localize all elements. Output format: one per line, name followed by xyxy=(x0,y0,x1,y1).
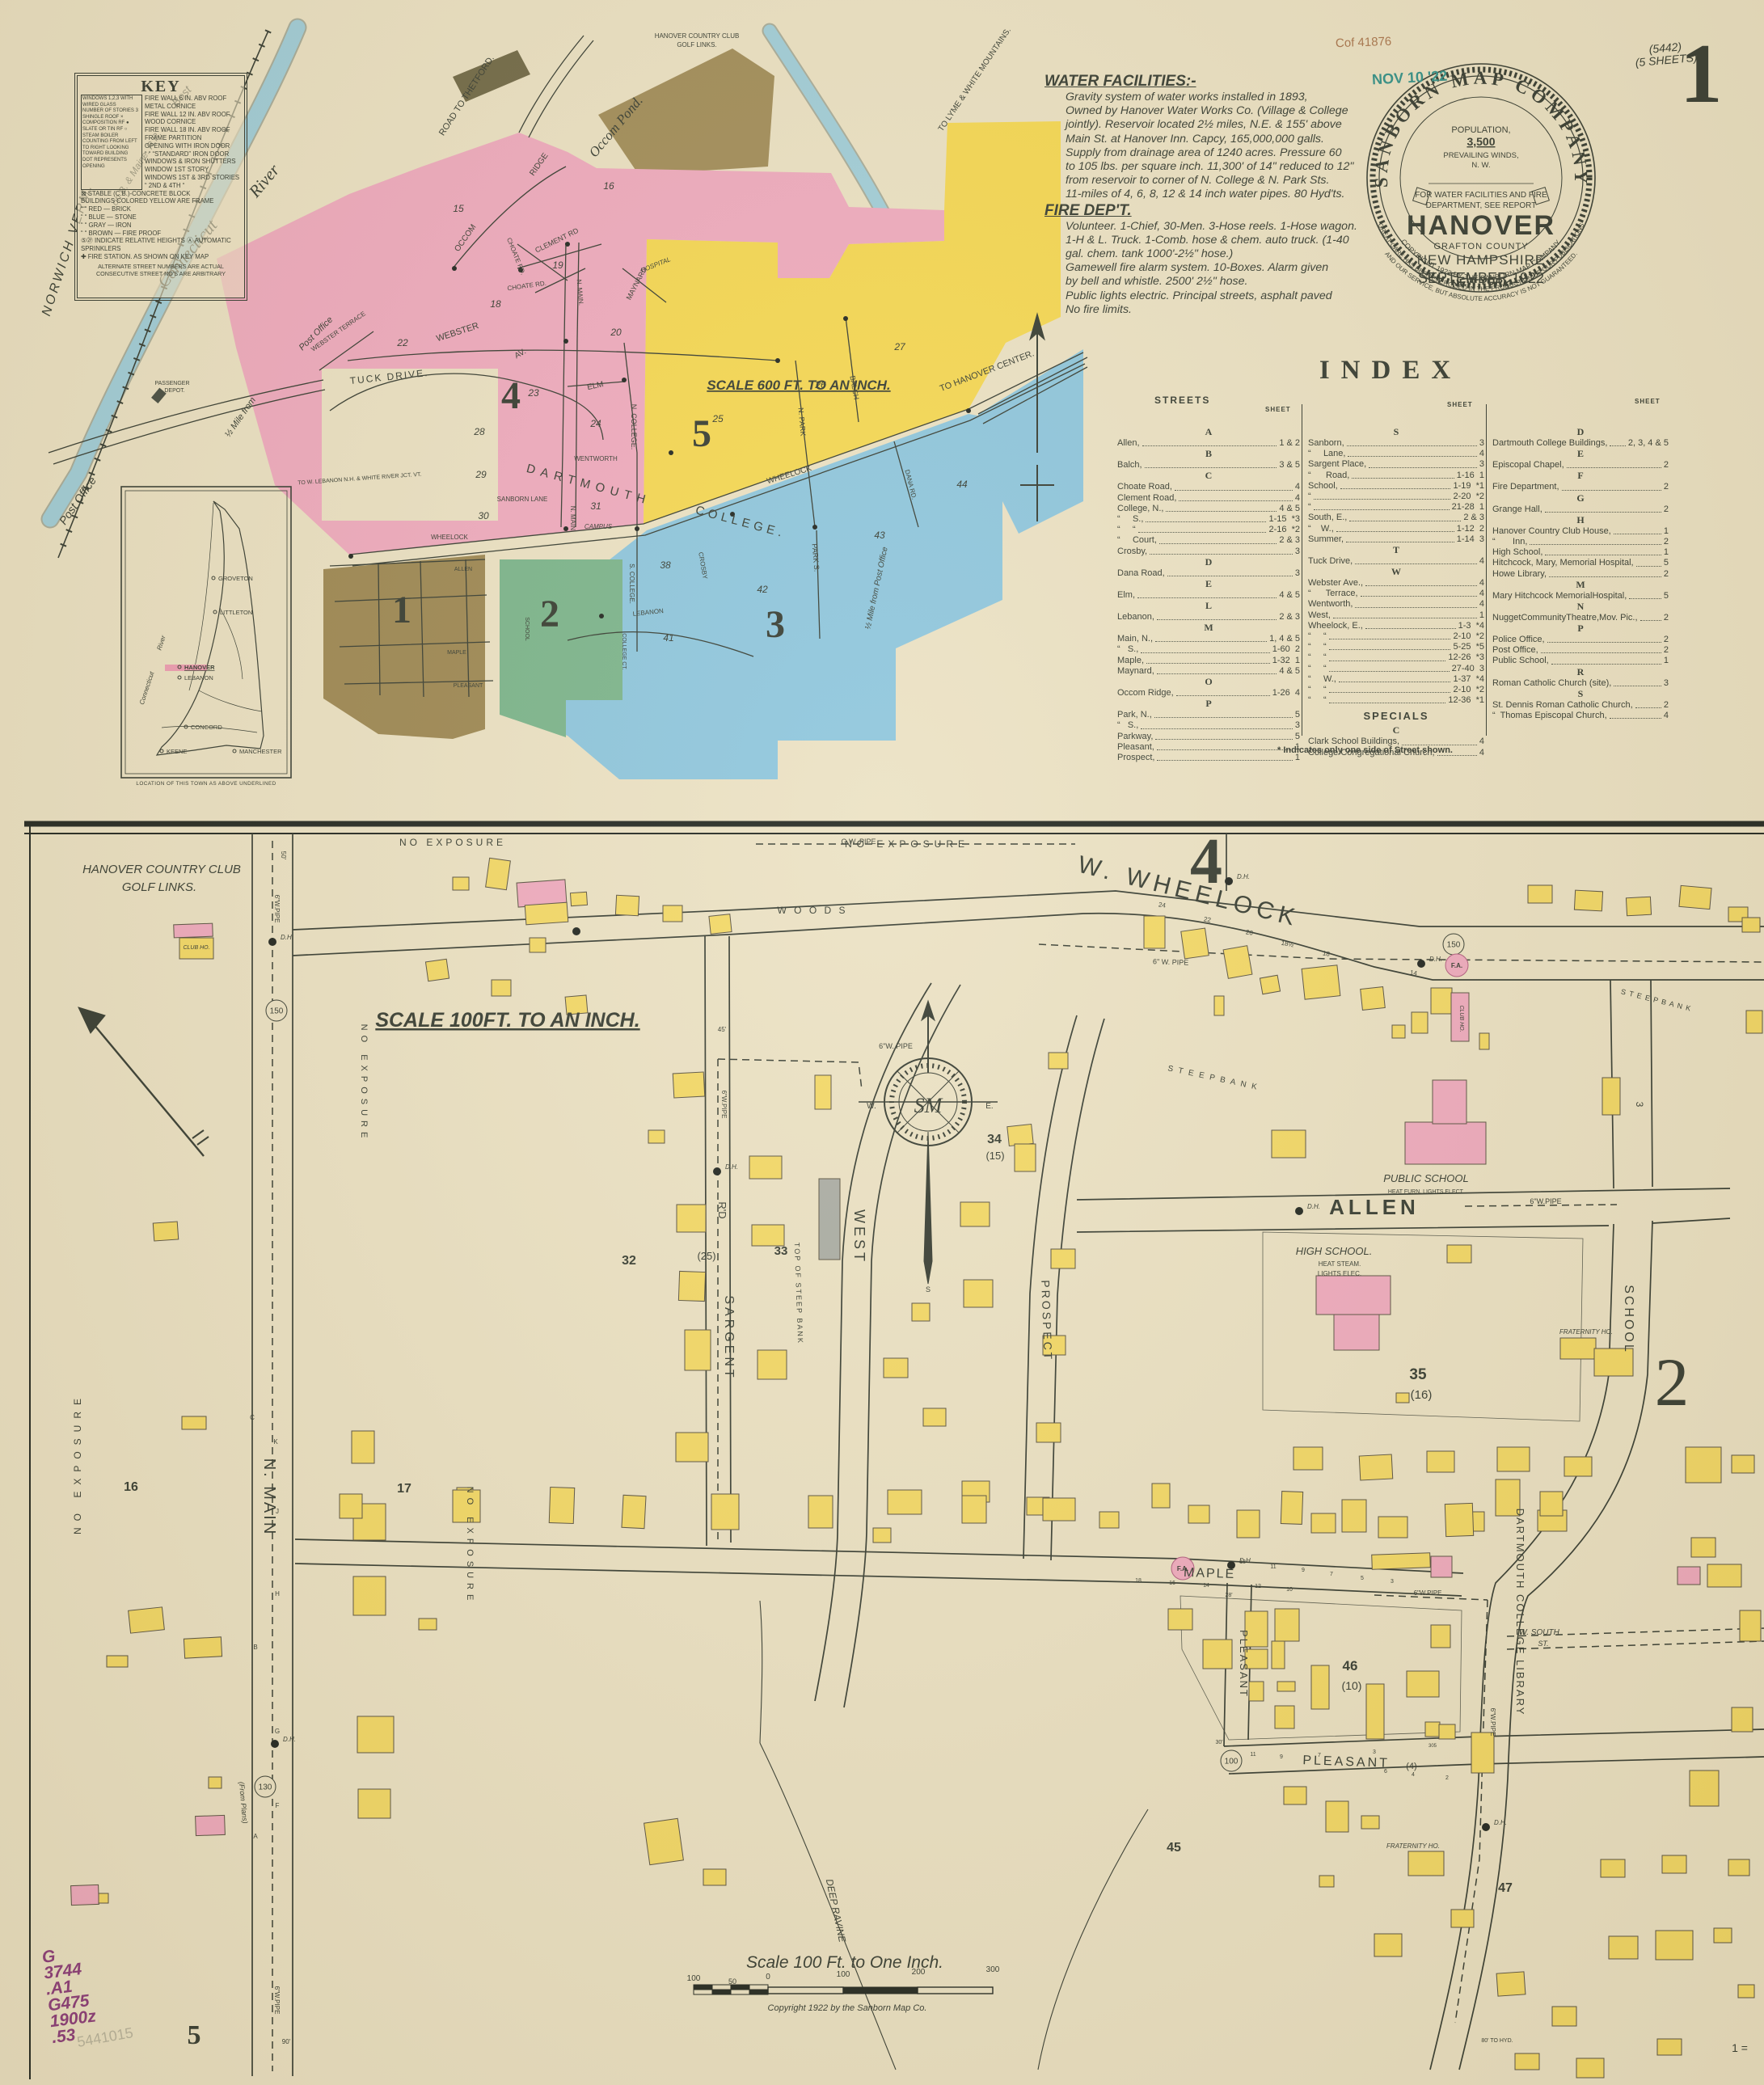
building xyxy=(749,1156,782,1179)
map-label: PLEASANT xyxy=(1302,1754,1390,1771)
building xyxy=(873,1528,891,1543)
index-letter-header: C xyxy=(1308,725,1484,737)
index-entry: “ “5-25 *5 xyxy=(1308,642,1484,652)
inset-town-dot xyxy=(213,610,217,614)
key-line: FIRE WALL 12 IN. ABV ROOF xyxy=(145,111,241,119)
building xyxy=(1497,1447,1530,1471)
building xyxy=(819,1179,840,1260)
map-label: TOP OF STEEP BANK xyxy=(793,1243,804,1344)
building xyxy=(453,877,469,890)
index-entry-name: “ S., xyxy=(1117,720,1138,731)
index-letter-header: O xyxy=(1117,677,1300,688)
block-number: 20 xyxy=(610,327,622,338)
index-entry: Sanborn,3 xyxy=(1308,438,1484,449)
index-entry-sheet: 4 xyxy=(1479,578,1484,589)
index-entry: “ Lane,4 xyxy=(1308,449,1484,459)
building xyxy=(1515,2053,1539,2070)
index-letter-header: C xyxy=(1117,471,1300,482)
building xyxy=(352,1431,374,1463)
map-label: S T E E P B A N K xyxy=(1167,1064,1259,1092)
building xyxy=(1293,1447,1323,1470)
index-letter-header: F xyxy=(1492,471,1669,482)
index-entry: Prospect,1 xyxy=(1117,753,1300,763)
index-entry-name: “ “ xyxy=(1308,642,1327,652)
map-label: SCHOOL xyxy=(1622,1285,1635,1354)
building xyxy=(1431,1625,1450,1648)
index-entry-sheet: 2, 3, 4 & 5 xyxy=(1628,438,1669,449)
street-prospect xyxy=(1023,1015,1104,1560)
map-label: SCALE 600 FT. TO AN INCH. xyxy=(707,378,890,393)
index-section-header: SPECIALS xyxy=(1308,706,1484,725)
building xyxy=(357,1716,394,1753)
map-label: 100 xyxy=(687,1974,701,1983)
index-entry-name: Allen, xyxy=(1117,438,1140,449)
building xyxy=(1528,885,1552,903)
index-entry-name: Sargent Place, xyxy=(1308,459,1366,470)
block-number: 26 xyxy=(814,379,826,390)
hydrant-label: D.H. xyxy=(1307,1203,1320,1210)
key-diagram-item: TOWARD BUILDING xyxy=(82,151,141,158)
index-letter-header: R xyxy=(1492,667,1669,678)
building xyxy=(1237,1510,1260,1538)
building xyxy=(923,1408,946,1426)
map-label: 3 xyxy=(1373,1749,1376,1755)
index-entry-sheet: 4 xyxy=(1295,482,1300,492)
index-entry: Choate Road,4 xyxy=(1117,482,1300,492)
index-letter-header: T xyxy=(1308,545,1484,556)
map-label: 2 xyxy=(1655,1344,1690,1420)
map-label: (4) xyxy=(1406,1762,1416,1771)
index-entry-name: Maynard, xyxy=(1117,666,1154,677)
inset-town: LEBANON xyxy=(184,674,213,682)
index-entry-sheet: 12-26 *3 xyxy=(1448,652,1484,663)
building xyxy=(1471,1733,1494,1773)
sheet-number: 1 xyxy=(1680,24,1723,122)
block-number: 18 xyxy=(490,298,501,310)
index-entry-sheet: 2-10 *2 xyxy=(1453,685,1484,695)
index-entry-name: Post Office, xyxy=(1492,645,1538,656)
circled-figure-text: 100 xyxy=(1225,1758,1239,1766)
map-label: WENTWORTH xyxy=(574,455,618,462)
building xyxy=(549,1487,575,1523)
building xyxy=(1311,1665,1329,1709)
inset-caption: LOCATION OF THIS TOWN AS ABOVE UNDERLINE… xyxy=(120,781,293,787)
index-entry-sheet: 2 xyxy=(1664,537,1669,547)
building xyxy=(1412,1012,1428,1033)
index-entry-name: High School, xyxy=(1492,547,1542,558)
index-entry: Roman Catholic Church (site),3 xyxy=(1492,678,1669,689)
map-label: HEAT FURN. LIGHTS ELECT. xyxy=(1388,1189,1464,1195)
index-entry-sheet: 1-26 4 xyxy=(1272,688,1300,699)
building xyxy=(1740,1610,1761,1641)
district-number: 1 xyxy=(392,589,411,631)
index-letter-header: E xyxy=(1117,579,1300,590)
building xyxy=(1334,1315,1379,1350)
index-entry-sheet: 3 xyxy=(1295,547,1300,557)
index-entry-sheet: 1-15 *3 xyxy=(1268,514,1300,525)
key-line: FIRE WALL 18 IN. ABV ROOF xyxy=(145,126,241,134)
index-entry: Dana Road,3 xyxy=(1117,568,1300,579)
building xyxy=(1677,1567,1700,1585)
key-diagram-item: OPENING xyxy=(82,164,141,171)
map-label: River xyxy=(244,160,284,202)
building xyxy=(1732,1707,1753,1732)
index-entry-name: College, N., xyxy=(1117,504,1163,514)
index-letter-header: D xyxy=(1492,427,1669,438)
building xyxy=(1714,1928,1732,1943)
building xyxy=(1602,1078,1620,1115)
building xyxy=(1366,1684,1384,1739)
index-entry: “ S.,1-15 *3 xyxy=(1117,514,1300,525)
map-label: 33 xyxy=(774,1244,788,1258)
index-entry: West,1 xyxy=(1308,610,1484,621)
index-entry: “ W.,1-37 *4 xyxy=(1308,674,1484,685)
building xyxy=(340,1494,362,1518)
map-label: 9 xyxy=(1302,1568,1305,1573)
map-label: 6"W.PIPE xyxy=(1489,1708,1496,1737)
map-label: FRATERNITY HO. xyxy=(1559,1328,1613,1336)
index-letter-header: M xyxy=(1117,623,1300,634)
index-entry-name: Choate Road, xyxy=(1117,482,1172,492)
north-arrow xyxy=(78,1007,209,1156)
map-label: 28' xyxy=(1225,1593,1232,1598)
index-entry-name: Maple, xyxy=(1117,656,1144,666)
index-entry: Public School,1 xyxy=(1492,656,1669,666)
key-line: “ “ “STANDARD” IRON DOOR xyxy=(145,150,241,158)
map-label: ½ Mile from xyxy=(223,395,258,439)
building xyxy=(1439,1724,1455,1739)
key-legend-color-lines: ⊠ STABLE (C.B.)-CONCRETE BLOCKBUILDINGS … xyxy=(81,190,241,261)
map-label: 14 xyxy=(1203,1583,1209,1589)
index-entry-sheet: 4 xyxy=(1479,449,1484,459)
map-label: COLLEGE CT. xyxy=(621,633,627,670)
index-entry: “ Court,2 & 3 xyxy=(1117,535,1300,546)
map-label: 11 xyxy=(1250,1752,1255,1758)
building xyxy=(912,1303,930,1321)
map-label: DEEP RAVINE xyxy=(824,1878,848,1944)
building xyxy=(1408,1851,1444,1876)
double-hydrant-dot xyxy=(1295,1207,1303,1215)
map-label: W. xyxy=(867,1102,876,1111)
index-entry-sheet: 3 & 5 xyxy=(1279,460,1300,471)
index-entry-sheet: 5 xyxy=(1664,558,1669,568)
key-line: FIRE WALL 6 IN. ABV ROOF xyxy=(145,95,241,103)
block-number: 41 xyxy=(663,632,673,644)
building xyxy=(1203,1640,1232,1669)
map-label: 34 xyxy=(987,1133,1002,1146)
index-entry-sheet: 1-14 3 xyxy=(1457,534,1484,545)
index-entry-name: “ S., xyxy=(1117,644,1138,655)
building xyxy=(1007,1124,1033,1146)
building xyxy=(711,1494,739,1530)
map-label: NO EXPOSURE xyxy=(359,1024,369,1143)
key-legend: KEY WINDOWS 1,2,3 WITHWIRED GLASSNUMBER … xyxy=(77,75,245,298)
building xyxy=(1275,1609,1299,1641)
building xyxy=(1316,1276,1391,1315)
building xyxy=(678,1271,705,1301)
building xyxy=(99,1893,108,1903)
map-label: S. COLLEGE. xyxy=(628,563,635,604)
building xyxy=(525,902,568,925)
index-entry-name: Balch, xyxy=(1117,460,1142,471)
index-entry: Wheelock, E.,1-3 *4 xyxy=(1308,621,1484,631)
building xyxy=(1425,1722,1440,1737)
index-entry: Police Office,2 xyxy=(1492,635,1669,645)
inset-river-label: River xyxy=(155,635,167,652)
map-label: MAPLE xyxy=(447,650,466,656)
state-inset-map: GROVETONLITTLETONHANOVERLEBANONCONCORDKE… xyxy=(120,485,293,779)
map-label: K xyxy=(273,1438,278,1446)
map-label: (15) xyxy=(985,1150,1004,1162)
building xyxy=(1427,1451,1454,1472)
index-entry-sheet: 4 & 5 xyxy=(1279,504,1300,514)
index-entry: “ “27-40 3 xyxy=(1308,664,1484,674)
index-entry-name: Prospect, xyxy=(1117,753,1154,763)
map-label: H xyxy=(275,1590,280,1598)
building xyxy=(1407,1671,1439,1697)
inset-river-label: ConnecticutRiver xyxy=(138,635,167,706)
detail-map-labels: 4W. WHEELOCKNO EXPOSURENO EXPOSUREHANOVE… xyxy=(72,826,1748,2054)
key-line: WINDOW 1ST STORY xyxy=(145,166,241,174)
index-entry: Crosby,3 xyxy=(1117,547,1300,557)
map-label: DEPOT. xyxy=(164,388,184,394)
building xyxy=(184,1637,222,1658)
index-entry-sheet: 1-12 2 xyxy=(1457,524,1484,534)
index-entry-name: Crosby, xyxy=(1117,547,1147,557)
block-number: 44 xyxy=(956,479,968,490)
map-label: 80' TO HYD. xyxy=(1481,2038,1513,2044)
map-label: 32 xyxy=(622,1254,636,1268)
index-entry: South, E.,2 & 3 xyxy=(1308,513,1484,523)
map-label: 5 xyxy=(188,2020,201,2050)
building xyxy=(815,1075,831,1109)
map-label: B xyxy=(253,1644,257,1651)
key-line: WOOD CORNICE xyxy=(145,118,241,126)
map-label: WEST xyxy=(851,1209,867,1264)
inset-town: CONCORD xyxy=(191,724,222,731)
index-entry-sheet: 5 xyxy=(1295,710,1300,720)
index-entry: “ Thomas Episcopal Church,4 xyxy=(1492,711,1669,721)
building xyxy=(1361,1816,1379,1829)
building xyxy=(358,1789,390,1818)
index-entry: “ W.,1-12 2 xyxy=(1308,524,1484,534)
index-entry: “ “12-26 *3 xyxy=(1308,652,1484,663)
building xyxy=(1099,1512,1119,1528)
building xyxy=(1564,1457,1592,1476)
building xyxy=(1392,1025,1405,1038)
inset-town-dot xyxy=(160,749,163,753)
building xyxy=(1152,1484,1170,1508)
building xyxy=(1260,975,1280,994)
building xyxy=(888,1490,922,1514)
index-entry-sheet: 3 xyxy=(1664,678,1669,689)
key-line: METAL CORNICE xyxy=(145,103,241,111)
index-entry-sheet: 2 xyxy=(1664,482,1669,492)
index-sheet-header: SHEET xyxy=(1447,401,1473,408)
map-label: 9 xyxy=(1280,1754,1283,1760)
index-entry: Hitchcock, Mary, Memorial Hospital,5 xyxy=(1492,558,1669,568)
index-entry-sheet: 4 xyxy=(1479,556,1484,567)
map-label: 30' xyxy=(1215,1740,1222,1745)
block-number: 42 xyxy=(757,584,768,595)
building xyxy=(182,1416,206,1429)
index-sheet-header: SHEET xyxy=(1635,398,1661,405)
key-diagram-item: WIRED GLASS xyxy=(82,103,141,109)
index-entry-name: “ Lane, xyxy=(1308,449,1345,459)
index-entry-name: Lebanon, xyxy=(1117,612,1154,623)
inset-town-dot xyxy=(233,749,236,753)
index-entry-sheet: 2 & 3 xyxy=(1279,612,1300,623)
index-entry: “21-28 1 xyxy=(1308,502,1484,513)
map-label: PLEASANT xyxy=(454,683,483,689)
circled-figure-text: 150 xyxy=(270,1007,284,1016)
map-label: LIGHTS ELEC. xyxy=(1318,1270,1361,1277)
map-label: SM xyxy=(914,1094,943,1117)
index-entry-sheet: 2-16 *2 xyxy=(1268,525,1300,535)
seal-report2: DEPARTMENT, SEE REPORT xyxy=(1426,201,1537,210)
index-entry-name: “ “ xyxy=(1308,631,1327,642)
map-label: 200 xyxy=(912,1968,926,1977)
scale-bar xyxy=(694,1985,993,1994)
building xyxy=(1496,1972,1526,1996)
map-label: ALLEN xyxy=(1329,1195,1420,1219)
map-label: PLEASANT xyxy=(1238,1630,1250,1698)
seal-county: GRAFTON COUNTY xyxy=(1433,242,1528,251)
index-letter-header: M xyxy=(1492,580,1669,591)
building xyxy=(1223,946,1252,979)
building xyxy=(1691,1538,1715,1557)
double-hydrant-dot xyxy=(1417,960,1425,968)
index-entry-name: “ Terrace, xyxy=(1308,589,1358,599)
building xyxy=(1431,1556,1452,1577)
block-number: 38 xyxy=(660,559,671,571)
inset-town: HANOVER xyxy=(184,664,215,671)
map-label: 300 xyxy=(986,1965,1000,1974)
building xyxy=(1049,1053,1068,1069)
index-entry-sheet: 3 xyxy=(1479,459,1484,470)
block-number: 15 xyxy=(453,203,464,214)
building xyxy=(1657,2039,1682,2055)
index-entry-sheet: 1-32 1 xyxy=(1272,656,1300,666)
index-entry-name: Fire Department, xyxy=(1492,482,1559,492)
index-entry-name: “ W., xyxy=(1308,674,1336,685)
key-line: “ “ BROWN — FIRE PROOF xyxy=(81,230,241,238)
index-entry-sheet: 2 xyxy=(1664,569,1669,580)
index-letter-header: S xyxy=(1492,689,1669,700)
street-index: INDEX STREETS SHEET SHEET SHEET AAllen,1… xyxy=(1099,356,1738,776)
double-hydrant-dot xyxy=(572,927,580,935)
index-entry: Grange Hall,2 xyxy=(1492,504,1669,515)
map-label: 45 xyxy=(1167,1841,1181,1855)
map-label: HANOVER COUNTRY CLUB xyxy=(655,32,740,40)
hydrant-label: D.H. xyxy=(1494,1819,1507,1826)
index-entry-sheet: 2 xyxy=(1664,460,1669,471)
map-label: (10) xyxy=(1342,1679,1362,1692)
index-entry-sheet: 27-40 3 xyxy=(1452,664,1484,674)
building xyxy=(960,1202,990,1226)
key-line: ⊠ STABLE (C.B.)-CONCRETE BLOCK xyxy=(81,190,241,198)
index-entry-name: West, xyxy=(1308,610,1331,621)
building xyxy=(1732,1455,1754,1473)
building xyxy=(758,1350,787,1379)
building xyxy=(615,895,639,915)
map-label: 17 xyxy=(397,1482,411,1496)
index-entry-name: Occom Ridge, xyxy=(1117,688,1174,699)
building xyxy=(1686,1447,1721,1483)
building xyxy=(962,1496,986,1523)
index-entry: “2-20 *2 xyxy=(1308,492,1484,502)
key-title: KEY xyxy=(81,78,241,95)
building xyxy=(1374,1934,1402,1956)
index-entry-name: Dana Road, xyxy=(1117,568,1165,579)
building xyxy=(884,1358,908,1378)
double-hydrant-dot xyxy=(268,938,276,946)
index-entry-name: St. Dennis Roman Catholic Church, xyxy=(1492,700,1633,711)
index-entry-sheet: 1-16 1 xyxy=(1457,471,1484,481)
map-label: SCHOOL xyxy=(524,617,530,641)
building xyxy=(1342,1500,1366,1532)
map-label: C xyxy=(250,1414,255,1421)
index-entry-sheet: 4 xyxy=(1479,599,1484,610)
hydrant-label: D.H. xyxy=(1429,956,1442,963)
building xyxy=(492,980,511,996)
index-entry-sheet: 2-20 *2 xyxy=(1453,492,1484,502)
key-line: WINDOWS & IRON SHUTTERS xyxy=(145,158,241,166)
building xyxy=(1272,1641,1285,1669)
index-entry-sheet: 5-25 *5 xyxy=(1453,642,1484,652)
block-number: 30 xyxy=(478,510,489,521)
hydrant-label: D.H. xyxy=(281,934,293,941)
building xyxy=(1277,1682,1295,1691)
building xyxy=(1214,996,1224,1015)
key-line: “ 2ND & 4TH “ xyxy=(145,182,241,190)
map-label: SANBORN LANE xyxy=(497,496,548,503)
block-number: 19 xyxy=(552,260,563,271)
index-footnote: * Indicates only one side of Street show… xyxy=(1277,745,1504,755)
index-entry-sheet: 3 xyxy=(1479,438,1484,449)
index-letter-header: L xyxy=(1117,601,1300,612)
map-label: S xyxy=(926,1285,931,1294)
map-label: ALLEN xyxy=(454,567,472,572)
index-entry-sheet: 2 xyxy=(1664,645,1669,656)
district-number: 3 xyxy=(766,603,785,646)
map-label: 3 xyxy=(1634,1102,1645,1108)
inset-town: MANCHESTER xyxy=(239,748,282,755)
index-entry-name: Hitchcock, Mary, Memorial Hospital, xyxy=(1492,558,1634,568)
index-entry: Park, N.,5 xyxy=(1117,710,1300,720)
seal-city: HANOVER xyxy=(1407,210,1555,241)
map-label: HIGH SCHOOL. xyxy=(1296,1245,1373,1257)
double-hydrant-dot xyxy=(271,1740,279,1748)
map-label: 6"W. PIPE xyxy=(879,1042,913,1050)
key-line: FRAME PARTITION xyxy=(145,134,241,142)
building xyxy=(703,1869,726,1885)
building xyxy=(1144,916,1165,948)
index-entry-sheet: 2 xyxy=(1664,700,1669,711)
building xyxy=(709,914,732,935)
block-number: 29 xyxy=(475,469,487,480)
index-entry: Howe Library,2 xyxy=(1492,569,1669,580)
index-letter-header: D xyxy=(1117,557,1300,568)
building xyxy=(1576,2058,1604,2078)
map-label: 5 xyxy=(1361,1576,1364,1581)
building xyxy=(530,938,546,952)
building xyxy=(1249,1682,1264,1701)
map-label: (25) xyxy=(697,1250,715,1262)
block-number: 43 xyxy=(874,530,885,541)
map-label: 6"W.PIPE xyxy=(1530,1197,1561,1205)
map-label: N. COLLEGE. xyxy=(630,404,638,450)
